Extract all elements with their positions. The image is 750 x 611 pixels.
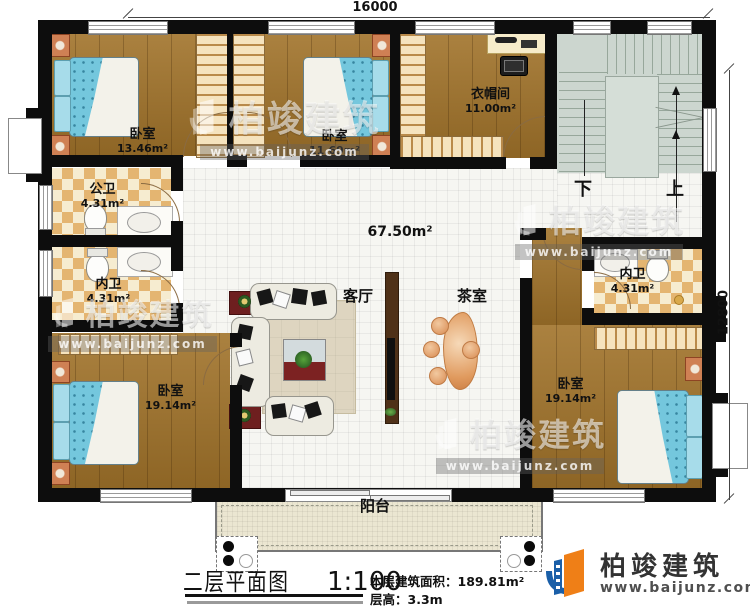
wall-interior (171, 303, 183, 332)
wall-interior (38, 320, 183, 332)
wall-interior (582, 313, 716, 325)
floor-area-label: 本层建筑面积： (370, 574, 458, 589)
nightstand (372, 34, 392, 57)
wall-interior (38, 235, 183, 247)
room-name: 卧室 (292, 130, 377, 145)
bed-pillow (372, 60, 389, 96)
living-room-label: 客厅 (328, 288, 388, 305)
dressing-table-item (521, 40, 537, 48)
dressing-table (487, 33, 547, 54)
bedroom-bottom-left-label: 卧室 19.14m² (128, 385, 213, 413)
wall-interior (520, 228, 546, 240)
room-area: 4.31m² (60, 198, 145, 211)
tea-stool (431, 317, 449, 335)
dressing-chair-seat (504, 60, 524, 72)
stair-landing (605, 76, 659, 178)
wall-interior (582, 308, 594, 325)
room-name: 卧室 (528, 378, 613, 393)
room-name: 衣帽间 (448, 88, 533, 103)
window (647, 21, 692, 35)
window (553, 489, 645, 503)
cloakroom-closet-left (400, 33, 426, 140)
public-bath-label: 公卫 4.31m² (60, 183, 145, 211)
window (415, 21, 495, 35)
window (100, 489, 192, 503)
wall-interior (582, 237, 594, 271)
inner-bath-right-label: 内卫 4.31m² (590, 268, 675, 296)
coffee-table-plant (295, 351, 312, 368)
sliding-door-leaf (290, 490, 370, 496)
room-area: 19.14m² (528, 393, 613, 406)
hall-strip (520, 168, 557, 228)
tea-room-label: 茶室 (442, 288, 502, 305)
room-area: 19.14m² (128, 400, 213, 413)
wall-interior (545, 33, 557, 157)
room-area: 13.46m² (100, 143, 185, 156)
window (573, 21, 611, 35)
wall-interior (227, 33, 233, 155)
wardrobe-bottom-left (58, 334, 178, 355)
bay-window-right (712, 403, 748, 469)
stairs-down-label: 下 (574, 175, 592, 201)
window (88, 21, 168, 35)
wall-interior (390, 33, 400, 157)
bedroom-top-middle-label: 卧室 11.69m² (292, 130, 377, 158)
pad-dot (524, 555, 535, 566)
bed-sheet (304, 58, 372, 136)
bed-pillow (686, 395, 703, 437)
bed-sheet (70, 58, 138, 136)
tea-stool (429, 367, 447, 385)
stair-arrow-up (672, 82, 680, 95)
wall-interior (171, 221, 183, 271)
stairs-up-label: 上 (666, 175, 684, 201)
wall-interior (227, 155, 247, 167)
bed-pillow (54, 60, 71, 96)
floor-height-info: 层高：3.3m (370, 589, 443, 608)
window (39, 185, 53, 230)
bay-window-left (8, 118, 42, 174)
bed-bottom-right (617, 390, 689, 484)
floor-height-label: 层高： (370, 592, 408, 607)
nightstand (50, 34, 70, 57)
window (703, 108, 717, 172)
sofa-pillow (271, 403, 287, 419)
bed-pillow (54, 96, 71, 132)
bed-pillow (53, 422, 70, 460)
wall-interior (171, 155, 183, 191)
cloakroom-label: 衣帽间 11.00m² (448, 88, 533, 116)
wardrobe-bottom-right (594, 327, 704, 350)
bath-accessory (674, 295, 684, 305)
room-name: 内卫 (66, 278, 151, 293)
tv-screen (387, 338, 395, 400)
company-logo-icon (540, 545, 592, 601)
plan-title: 二层平面图 (183, 562, 290, 597)
dressing-table-item (495, 37, 517, 43)
wall-interior (530, 157, 557, 169)
room-name: 公卫 (60, 183, 145, 198)
wall-interior (582, 237, 702, 249)
nightstand (50, 462, 70, 485)
bedroom-top-left-label: 卧室 13.46m² (100, 128, 185, 156)
dimension-right-label: 12800 (717, 283, 732, 343)
tea-stool (462, 341, 480, 359)
room-area: 4.31m² (590, 283, 675, 296)
company-logo-name: 柏竣建筑 (600, 546, 724, 583)
pad-dot (524, 541, 535, 552)
dimension-top-line (128, 17, 710, 18)
bed-pillow (53, 384, 70, 422)
balcony-column-pad-right (500, 536, 542, 572)
sink-basin (127, 252, 161, 272)
toilet-tank (647, 250, 668, 259)
stair-arrow-up (672, 126, 680, 139)
plant (385, 408, 396, 416)
stair-treads-left (559, 72, 607, 172)
bed-top-left (69, 57, 139, 137)
wall-interior (38, 155, 182, 167)
room-name: 卧室 (100, 128, 185, 143)
pad-dot (223, 541, 234, 552)
wall-interior (390, 157, 506, 169)
bed-sheet (618, 391, 688, 483)
room-area: 11.69m² (292, 145, 377, 158)
dimension-top-label: 16000 (340, 0, 410, 15)
floor-height-value: 3.3m (408, 592, 443, 607)
wall-interior (230, 333, 242, 347)
floor-area-value: 189.81m² (458, 574, 525, 589)
plant (238, 295, 251, 308)
room-area: 11.00m² (448, 103, 533, 116)
bed-pillow (372, 96, 389, 132)
bed-pillow (686, 437, 703, 479)
nightstand (50, 361, 70, 383)
bedroom-bottom-right-label: 卧室 19.14m² (528, 378, 613, 406)
floor-plan-canvas: 16000 12800 (0, 0, 750, 611)
wall-interior (230, 385, 242, 488)
room-area: 4.31m² (66, 293, 151, 306)
title-underline (185, 594, 363, 597)
tea-stool (423, 341, 440, 358)
inner-bath-left-label: 内卫 4.31m² (66, 278, 151, 306)
stair-treads-top (607, 34, 703, 74)
floor-area-info: 本层建筑面积：189.81m² (370, 571, 524, 590)
company-logo-url: www.baijunz.com (600, 580, 750, 596)
window (268, 21, 355, 35)
pad-dot-outline (507, 554, 521, 568)
room-name: 卧室 (128, 385, 213, 400)
room-name: 内卫 (590, 268, 675, 283)
window (39, 250, 53, 297)
hall-area-label: 67.50m² (350, 224, 450, 240)
bed-top-middle (303, 57, 373, 137)
toilet-tank (87, 248, 108, 257)
balcony-label: 阳台 (330, 498, 420, 515)
sofa-pillow (311, 290, 327, 306)
sofa-pillow (291, 288, 308, 305)
stair-guide-line (584, 100, 585, 176)
title-underline-shadow (187, 601, 363, 604)
